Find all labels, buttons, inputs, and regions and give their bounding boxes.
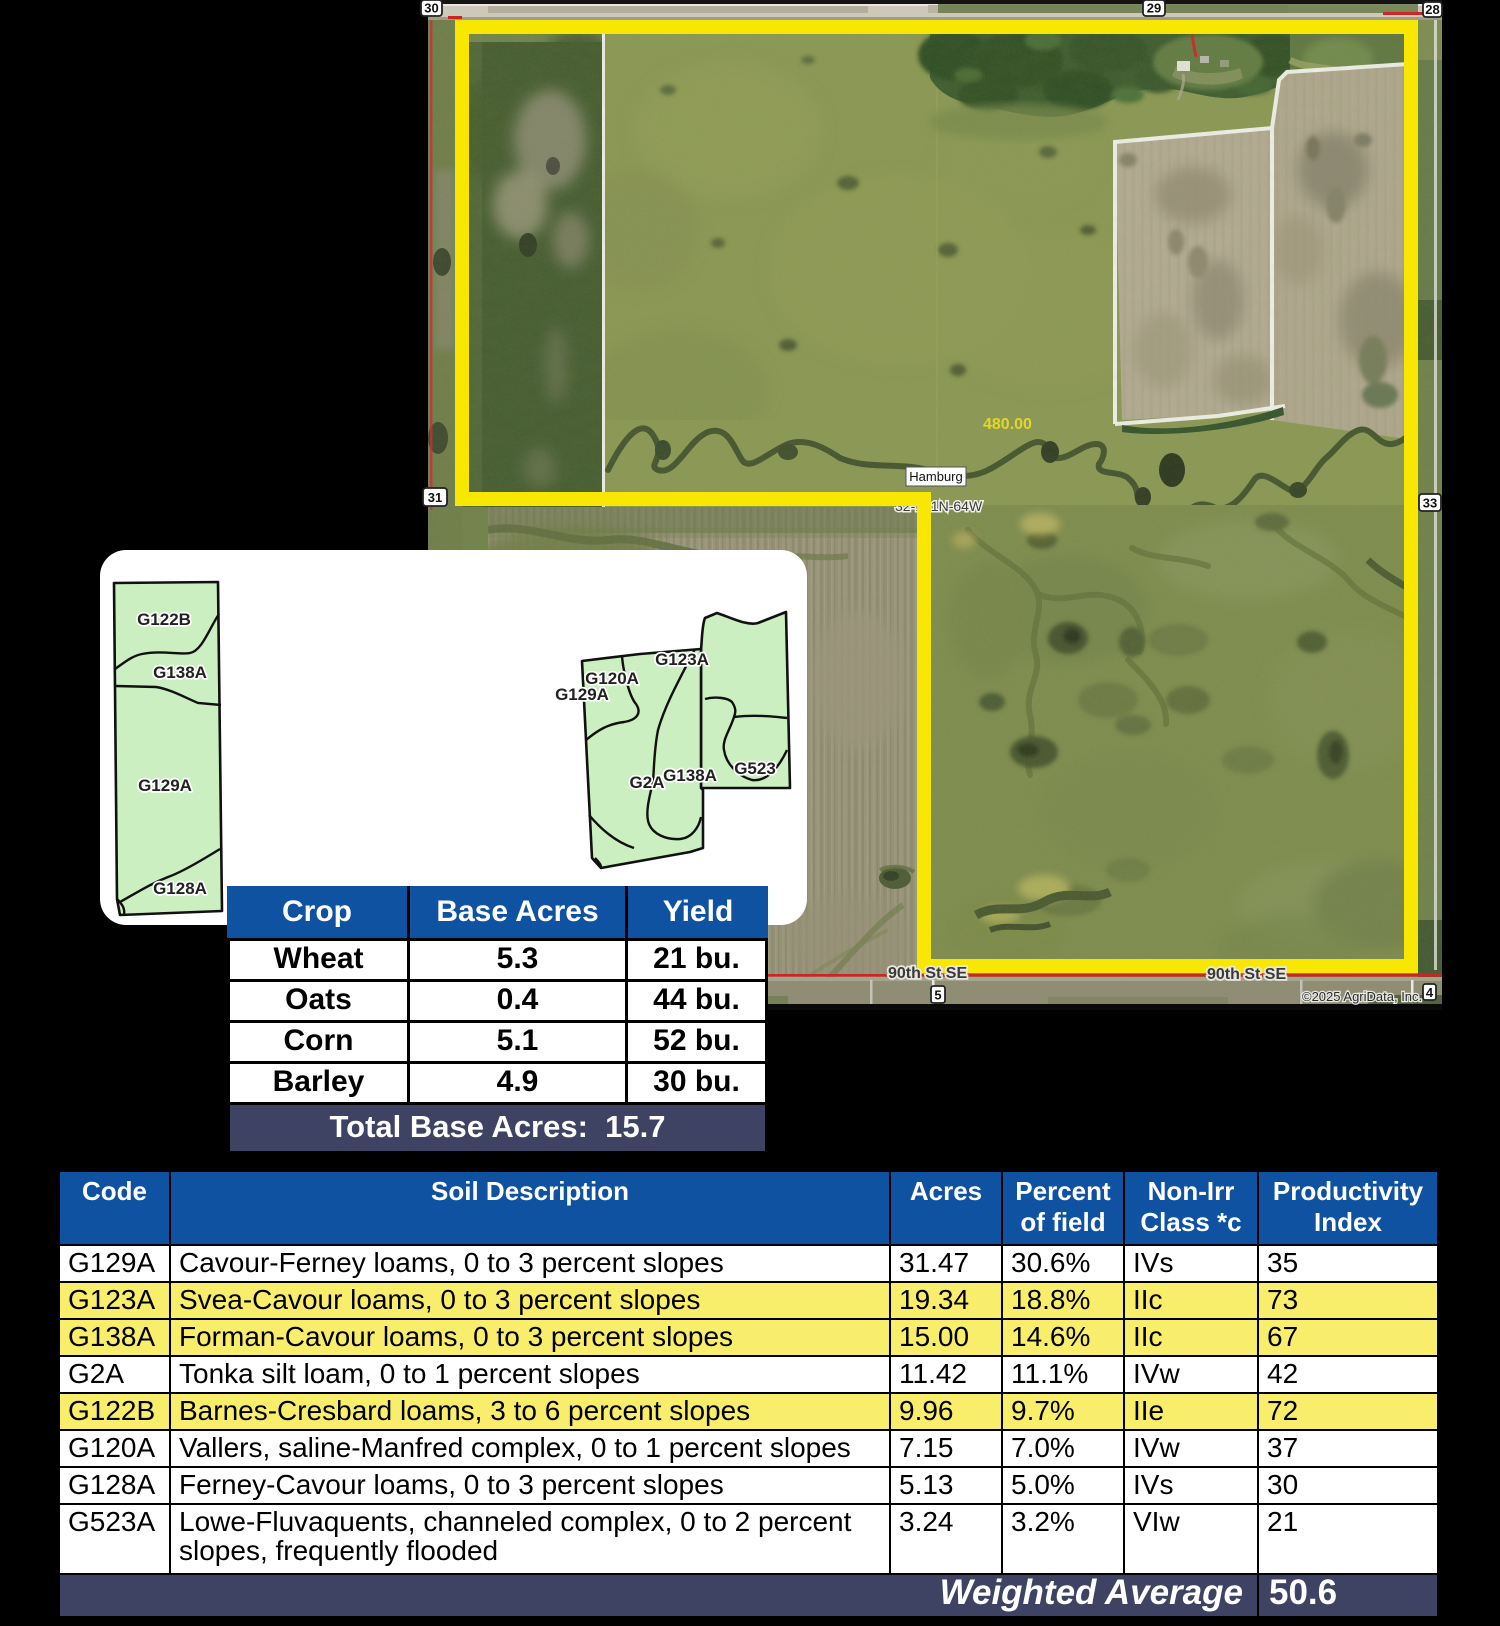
svg-text:G123A: G123A bbox=[655, 650, 709, 669]
svg-text:G138A: G138A bbox=[663, 766, 717, 785]
svg-text:31: 31 bbox=[428, 490, 442, 505]
svg-text:G129A: G129A bbox=[555, 685, 609, 704]
svg-text:33: 33 bbox=[1423, 496, 1437, 511]
svg-text:480.00: 480.00 bbox=[983, 416, 1032, 433]
svg-text:5: 5 bbox=[934, 988, 941, 1003]
svg-text:30: 30 bbox=[424, 1, 438, 16]
svg-text:G122B: G122B bbox=[137, 610, 191, 629]
svg-text:G138A: G138A bbox=[153, 663, 207, 682]
svg-text:G128A: G128A bbox=[153, 879, 207, 898]
svg-text:Hamburg: Hamburg bbox=[909, 469, 962, 484]
svg-text:29: 29 bbox=[1147, 1, 1161, 16]
svg-text:G129A: G129A bbox=[138, 776, 192, 795]
svg-text:90th St SE: 90th St SE bbox=[888, 965, 967, 982]
svg-text:90th St SE: 90th St SE bbox=[1207, 966, 1286, 983]
svg-text:28: 28 bbox=[1425, 2, 1439, 17]
svg-text:G523: G523 bbox=[734, 759, 776, 778]
svg-text:©2025 AgriData, Inc.: ©2025 AgriData, Inc. bbox=[1302, 989, 1422, 1004]
svg-text:G2A: G2A bbox=[630, 773, 665, 792]
svg-text:4: 4 bbox=[1426, 985, 1434, 1000]
